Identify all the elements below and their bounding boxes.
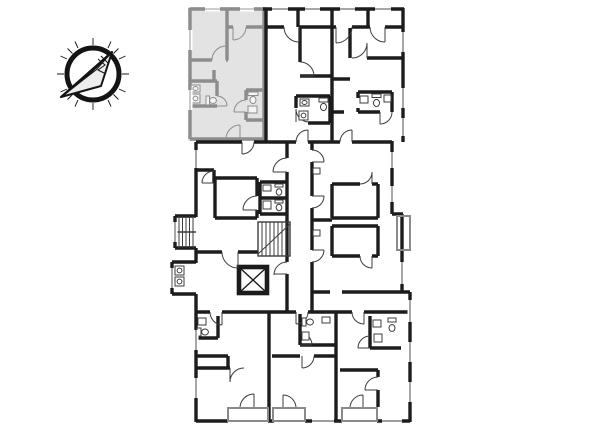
floor-plan-viewer <box>0 0 600 440</box>
staircase-left-icon <box>175 216 196 248</box>
highlighted-unit[interactable] <box>188 7 267 141</box>
staircase-right-icon <box>258 222 290 256</box>
balconies <box>228 216 410 421</box>
elevator-icon <box>239 267 267 293</box>
north-arrow-compass-icon <box>57 38 129 110</box>
middle-band-walls <box>196 142 402 312</box>
floor-plan-canvas[interactable] <box>0 0 600 440</box>
